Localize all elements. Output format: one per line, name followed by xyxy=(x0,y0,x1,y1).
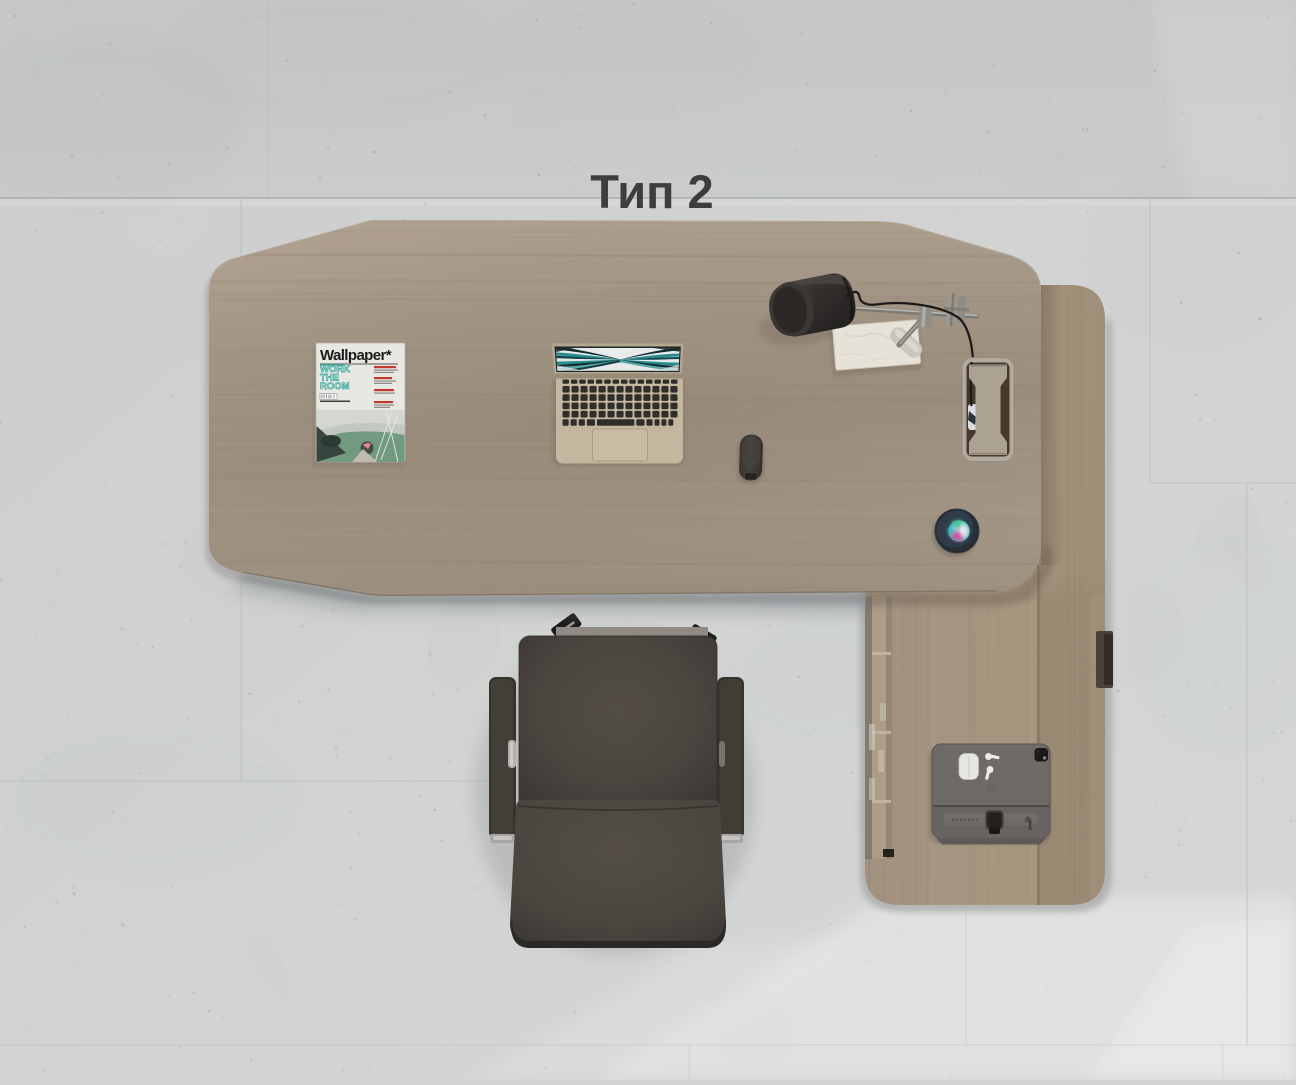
svg-text:Wallpaper*: Wallpaper* xyxy=(320,347,392,364)
svg-text:ROOM: ROOM xyxy=(320,381,350,392)
svg-text:Тип 2: Тип 2 xyxy=(590,165,713,218)
